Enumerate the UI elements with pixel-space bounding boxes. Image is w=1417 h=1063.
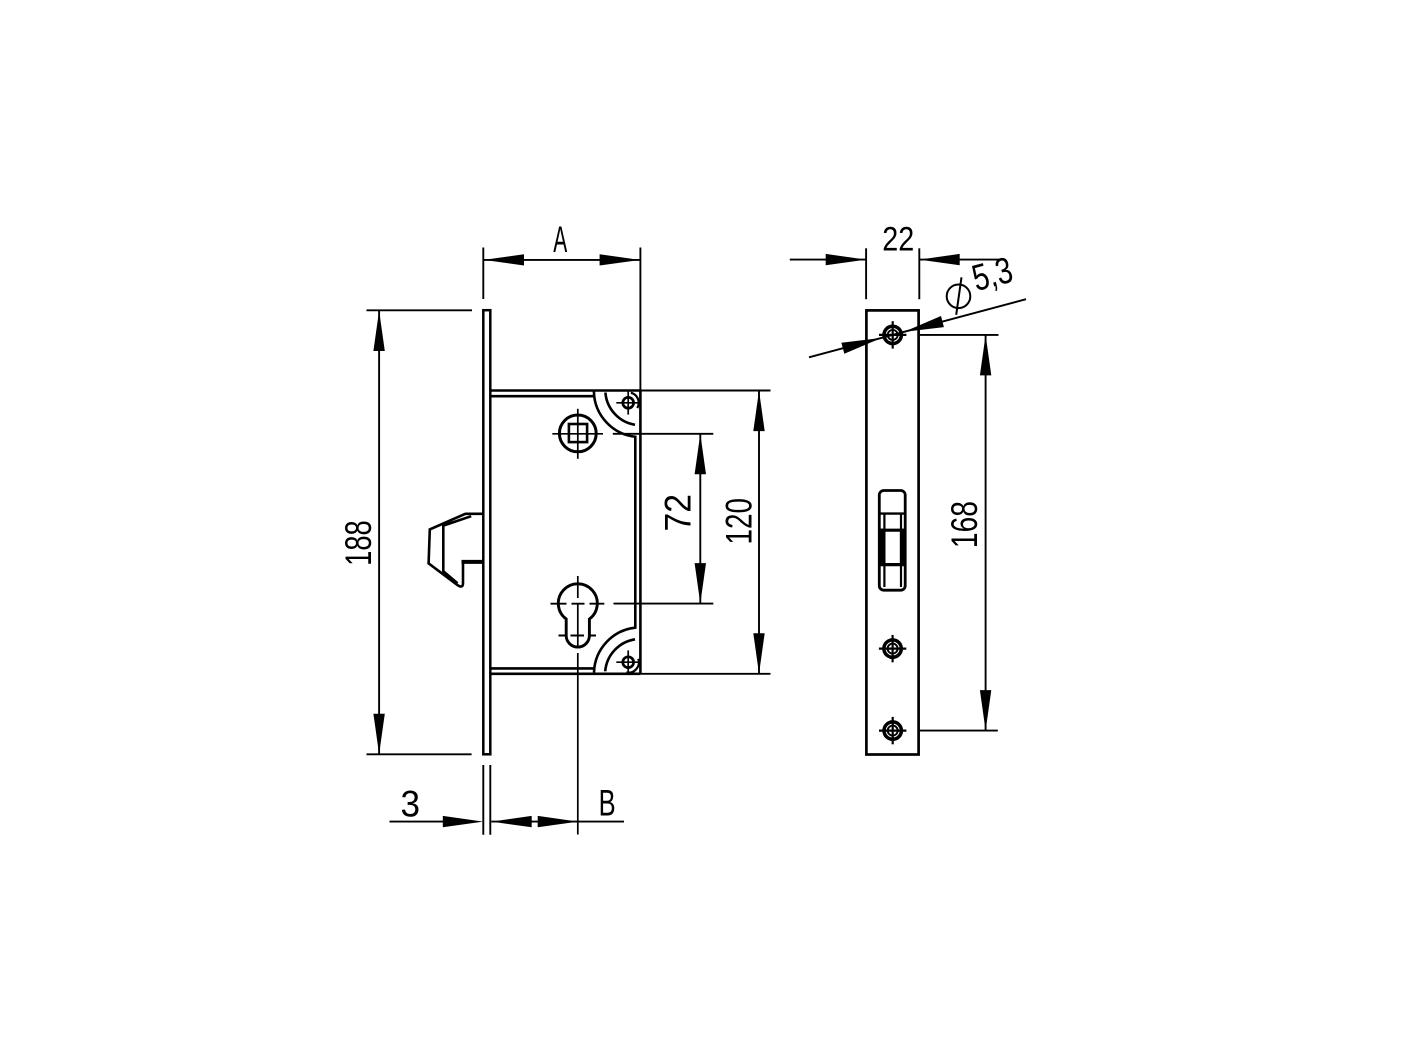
svg-text:188: 188 [338,520,379,566]
svg-text:120: 120 [718,498,759,545]
svg-text:B: B [599,783,616,824]
svg-text:A: A [553,219,567,260]
svg-text:22: 22 [882,221,914,259]
svg-text:3: 3 [401,784,421,825]
svg-text:72: 72 [658,494,699,532]
svg-text:168: 168 [944,501,985,548]
svg-text:5,3: 5,3 [968,249,1017,299]
